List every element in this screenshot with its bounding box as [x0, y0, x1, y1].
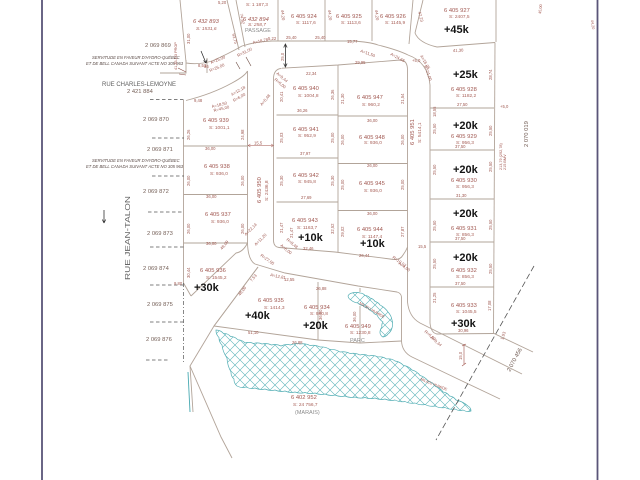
- svg-text:21,47: 21,47: [279, 222, 284, 233]
- svg-text:S: 945,8: S: 945,8: [298, 179, 316, 185]
- svg-text:+30k: +30k: [194, 282, 220, 294]
- svg-text:6 405 927: 6 405 927: [444, 8, 470, 14]
- svg-text:26,00: 26,00: [186, 175, 191, 186]
- svg-text:25,40: 25,40: [315, 35, 326, 40]
- svg-text:6 405 929: 6 405 929: [451, 134, 477, 140]
- svg-text:36,00: 36,00: [352, 311, 357, 322]
- svg-text:+5,0: +5,0: [500, 104, 509, 109]
- svg-text:PARC: PARC: [350, 338, 365, 344]
- svg-text:21,47: 21,47: [289, 227, 294, 238]
- svg-text:21,30: 21,30: [340, 93, 345, 104]
- svg-text:2 069 872: 2 069 872: [143, 189, 169, 195]
- svg-text:30,44: 30,44: [186, 267, 191, 278]
- svg-text:+20k: +20k: [453, 208, 479, 220]
- svg-text:25,50: 25,50: [432, 164, 437, 175]
- svg-text:32,52: 32,52: [330, 223, 335, 234]
- svg-text:+40k: +40k: [245, 310, 271, 322]
- svg-text:S: 5414,1: S: 5414,1: [417, 122, 423, 143]
- svg-text:S: 1230,8: S: 1230,8: [350, 330, 371, 336]
- svg-text:18,55: 18,55: [432, 106, 437, 117]
- svg-text:2 069 869: 2 069 869: [145, 43, 171, 49]
- svg-text:ET DE BELL CANADA SUIVANT ACTE: ET DE BELL CANADA SUIVANT ACTE NO 305 96…: [86, 61, 184, 66]
- svg-text:27,87: 27,87: [400, 226, 405, 237]
- svg-text:25,00: 25,00: [330, 132, 335, 143]
- svg-text:30,96: 30,96: [458, 328, 469, 333]
- svg-text:RUE JEAN-TALON: RUE JEAN-TALON: [123, 196, 132, 280]
- svg-text:29,02: 29,02: [340, 226, 345, 237]
- svg-text:PASSAGE: PASSAGE: [245, 28, 271, 34]
- svg-text:6 405 928: 6 405 928: [451, 87, 477, 93]
- svg-text:31,00: 31,00: [186, 33, 191, 44]
- svg-text:28,74: 28,74: [488, 69, 493, 80]
- svg-text:29,95: 29,95: [355, 60, 366, 65]
- svg-text:25,50: 25,50: [488, 219, 493, 230]
- svg-text:27,69: 27,69: [301, 195, 312, 200]
- svg-text:26,00: 26,00: [367, 163, 378, 168]
- svg-text:6 405 926: 6 405 926: [380, 14, 406, 20]
- svg-text:S: 936,0: S: 936,0: [364, 188, 382, 194]
- svg-text:S: 960,2: S: 960,2: [362, 102, 380, 108]
- svg-text:20,41: 20,41: [279, 91, 284, 102]
- svg-text:+20k: +20k: [453, 252, 479, 264]
- svg-text:6 405 950: 6 405 950: [257, 177, 263, 203]
- svg-text:(MARAIS): (MARAIS): [295, 410, 320, 416]
- svg-text:+25k: +25k: [453, 69, 479, 81]
- svg-text:S: 1117,6: S: 1117,6: [296, 20, 316, 26]
- svg-text:S: 936,0: S: 936,0: [210, 171, 228, 177]
- svg-text:S: 956,3: S: 956,3: [456, 184, 474, 190]
- svg-text:6 405 944: 6 405 944: [357, 227, 384, 233]
- svg-text:2 069 871: 2 069 871: [147, 147, 173, 153]
- svg-text:6 405 924: 6 405 924: [291, 14, 318, 20]
- svg-text:S: 1531,6: S: 1531,6: [196, 26, 217, 32]
- svg-text:SERVITUDE EN FAVEUR D'HYDRO-QU: SERVITUDE EN FAVEUR D'HYDRO-QUÉBEC: [92, 55, 181, 60]
- svg-text:S: 1001,1: S: 1001,1: [209, 125, 230, 131]
- svg-text:22,34: 22,34: [306, 71, 317, 76]
- svg-text:12,55: 12,55: [284, 277, 295, 282]
- svg-text:2 069 876: 2 069 876: [146, 337, 172, 343]
- svg-text:6 405 940: 6 405 940: [293, 86, 319, 92]
- svg-text:25,40: 25,40: [286, 35, 297, 40]
- svg-text:SERVITUDE EN FAVEUR D'HYDRO-QU: SERVITUDE EN FAVEUR D'HYDRO-QUÉBEC: [92, 158, 181, 163]
- svg-text:S: 952,9: S: 952,9: [298, 133, 316, 139]
- svg-text:6 405 951: 6 405 951: [410, 119, 416, 145]
- svg-text:2 421 884: 2 421 884: [127, 89, 154, 95]
- svg-text:6 405 931: 6 405 931: [451, 226, 477, 232]
- svg-text:26,88: 26,88: [292, 340, 303, 345]
- svg-text:15,5: 15,5: [418, 244, 427, 249]
- svg-text:6 405 947: 6 405 947: [357, 95, 383, 101]
- svg-text:36,00: 36,00: [318, 309, 323, 320]
- svg-text:6 405 942: 6 405 942: [293, 173, 319, 179]
- svg-text:36,00: 36,00: [367, 118, 378, 123]
- svg-text:26,44: 26,44: [359, 253, 370, 258]
- svg-text:25,03: 25,03: [279, 132, 284, 143]
- svg-text:+5,0: +5,0: [412, 58, 421, 63]
- svg-text:6 405 939: 6 405 939: [203, 118, 229, 124]
- svg-text:25,50: 25,50: [488, 161, 493, 172]
- svg-text:36,00: 36,00: [206, 241, 217, 246]
- svg-text:+20k: +20k: [303, 320, 329, 332]
- svg-text:24,98: 24,98: [240, 129, 245, 140]
- svg-text:S: 1182,2: S: 1182,2: [456, 93, 477, 99]
- svg-text:37,97: 37,97: [300, 151, 311, 156]
- svg-text:25,50: 25,50: [488, 125, 493, 136]
- svg-text:9,80: 9,80: [174, 281, 183, 286]
- svg-text:31,30: 31,30: [456, 193, 467, 198]
- svg-text:S: 856,3: S: 856,3: [456, 274, 474, 280]
- svg-text:S: 2436,8: S: 2436,8: [264, 180, 270, 201]
- svg-text:26,36: 26,36: [330, 89, 335, 100]
- svg-text:26,00: 26,00: [240, 175, 245, 186]
- svg-text:15,5: 15,5: [254, 141, 263, 146]
- svg-text:6 432 893: 6 432 893: [193, 19, 220, 25]
- svg-text:S: 2407,5: S: 2407,5: [449, 14, 470, 20]
- svg-text:21,54: 21,54: [400, 93, 405, 104]
- svg-text:36,00: 36,00: [205, 146, 216, 151]
- svg-text:41,30: 41,30: [453, 47, 464, 53]
- svg-text:2 069 874: 2 069 874: [143, 266, 170, 272]
- svg-text:6 402 952: 6 402 952: [291, 395, 317, 401]
- svg-text:17,08: 17,08: [487, 300, 492, 311]
- svg-text:9,48: 9,48: [194, 98, 203, 103]
- svg-text:ET DE BELL CANADA SUIVANT ACTE: ET DE BELL CANADA SUIVANT ACTE NO 305 96…: [86, 164, 184, 169]
- svg-text:6 405 930: 6 405 930: [451, 178, 477, 184]
- svg-text:44,20: 44,20: [327, 10, 333, 22]
- svg-text:25,50: 25,50: [432, 123, 437, 134]
- svg-text:25,50: 25,50: [432, 220, 437, 231]
- svg-text:25,0: 25,0: [280, 52, 285, 61]
- svg-text:6 405 949: 6 405 949: [345, 324, 371, 330]
- svg-text:+10k: +10k: [298, 232, 324, 244]
- svg-text:25,00: 25,00: [400, 179, 405, 190]
- svg-text:36,26: 36,26: [297, 108, 308, 113]
- svg-text:36,00: 36,00: [206, 194, 217, 199]
- svg-text:6 405 932: 6 405 932: [451, 268, 477, 274]
- svg-text:41,35-1/3 PROP: 41,35-1/3 PROP: [174, 42, 178, 70]
- svg-text:37,50: 37,50: [455, 236, 466, 241]
- svg-text:S: 1045,5: S: 1045,5: [456, 309, 477, 315]
- svg-text:6 405 933: 6 405 933: [451, 303, 477, 309]
- svg-text:8,53: 8,53: [198, 63, 207, 68]
- svg-text:S: 936,0: S: 936,0: [364, 140, 382, 146]
- svg-text:+45k: +45k: [444, 24, 470, 36]
- svg-text:2 069 870: 2 069 870: [143, 117, 169, 123]
- svg-text:26,00: 26,00: [186, 223, 191, 234]
- svg-text:25,30: 25,30: [279, 175, 284, 186]
- svg-text:25,50: 25,50: [488, 263, 493, 274]
- svg-text:25,00: 25,00: [340, 179, 345, 190]
- svg-text:32,46: 32,46: [303, 246, 314, 251]
- svg-text:6 405 941: 6 405 941: [293, 127, 319, 133]
- svg-text:S: 24 756,7: S: 24 756,7: [293, 402, 318, 408]
- svg-text:37,50: 37,50: [455, 281, 466, 286]
- svg-text:51,10: 51,10: [248, 330, 259, 335]
- svg-text:+20k: +20k: [453, 120, 479, 132]
- svg-text:26,00: 26,00: [400, 134, 405, 145]
- svg-text:S: 936,0: S: 936,0: [211, 219, 229, 225]
- svg-text:6 405 943: 6 405 943: [292, 218, 318, 224]
- svg-text:2 069 875: 2 069 875: [147, 302, 173, 308]
- svg-text:S: 1004,8: S: 1004,8: [298, 93, 319, 99]
- svg-text:RUE CHARLES-LEMOYNE: RUE CHARLES-LEMOYNE: [102, 81, 177, 88]
- svg-text:2 070 019: 2 070 019: [524, 121, 530, 147]
- svg-text:6 405 938: 6 405 938: [204, 164, 230, 170]
- svg-text:+10k: +10k: [360, 238, 386, 250]
- svg-text:6 405 925: 6 405 925: [336, 14, 362, 20]
- svg-text:S: 1545,2: S: 1545,2: [206, 275, 227, 281]
- svg-text:S: 1 187,3: S: 1 187,3: [246, 2, 268, 8]
- svg-text:37,50: 37,50: [455, 144, 466, 149]
- svg-text:2 069 873: 2 069 873: [147, 231, 173, 237]
- svg-text:6 405 945: 6 405 945: [359, 181, 385, 187]
- svg-text:5,20: 5,20: [218, 0, 227, 5]
- svg-text:215 BMV: 215 BMV: [503, 154, 507, 170]
- svg-text:6 405 937: 6 405 937: [205, 212, 231, 218]
- svg-text:25,30: 25,30: [330, 175, 335, 186]
- svg-text:44,20: 44,20: [280, 10, 286, 22]
- svg-text:15,77: 15,77: [347, 39, 358, 44]
- svg-text:44,20: 44,20: [374, 10, 380, 22]
- svg-text:6 405 936: 6 405 936: [200, 268, 226, 274]
- svg-text:+20k: +20k: [453, 164, 479, 176]
- svg-text:26,00: 26,00: [340, 134, 345, 145]
- svg-text:25,50: 25,50: [432, 258, 437, 269]
- svg-text:26,26: 26,26: [186, 129, 191, 140]
- svg-text:S: 1145,9: S: 1145,9: [385, 20, 406, 26]
- svg-text:15,0: 15,0: [458, 351, 463, 360]
- svg-text:36,00: 36,00: [367, 211, 378, 216]
- svg-text:S: 1113,6: S: 1113,6: [341, 20, 361, 26]
- svg-text:5,22: 5,22: [268, 36, 277, 41]
- svg-text:26,88: 26,88: [316, 286, 327, 291]
- svg-text:6 405 935: 6 405 935: [258, 298, 284, 304]
- svg-text:27,50: 27,50: [457, 102, 468, 107]
- svg-text:S: 1163,7: S: 1163,7: [297, 225, 318, 231]
- svg-text:21,25: 21,25: [432, 292, 437, 303]
